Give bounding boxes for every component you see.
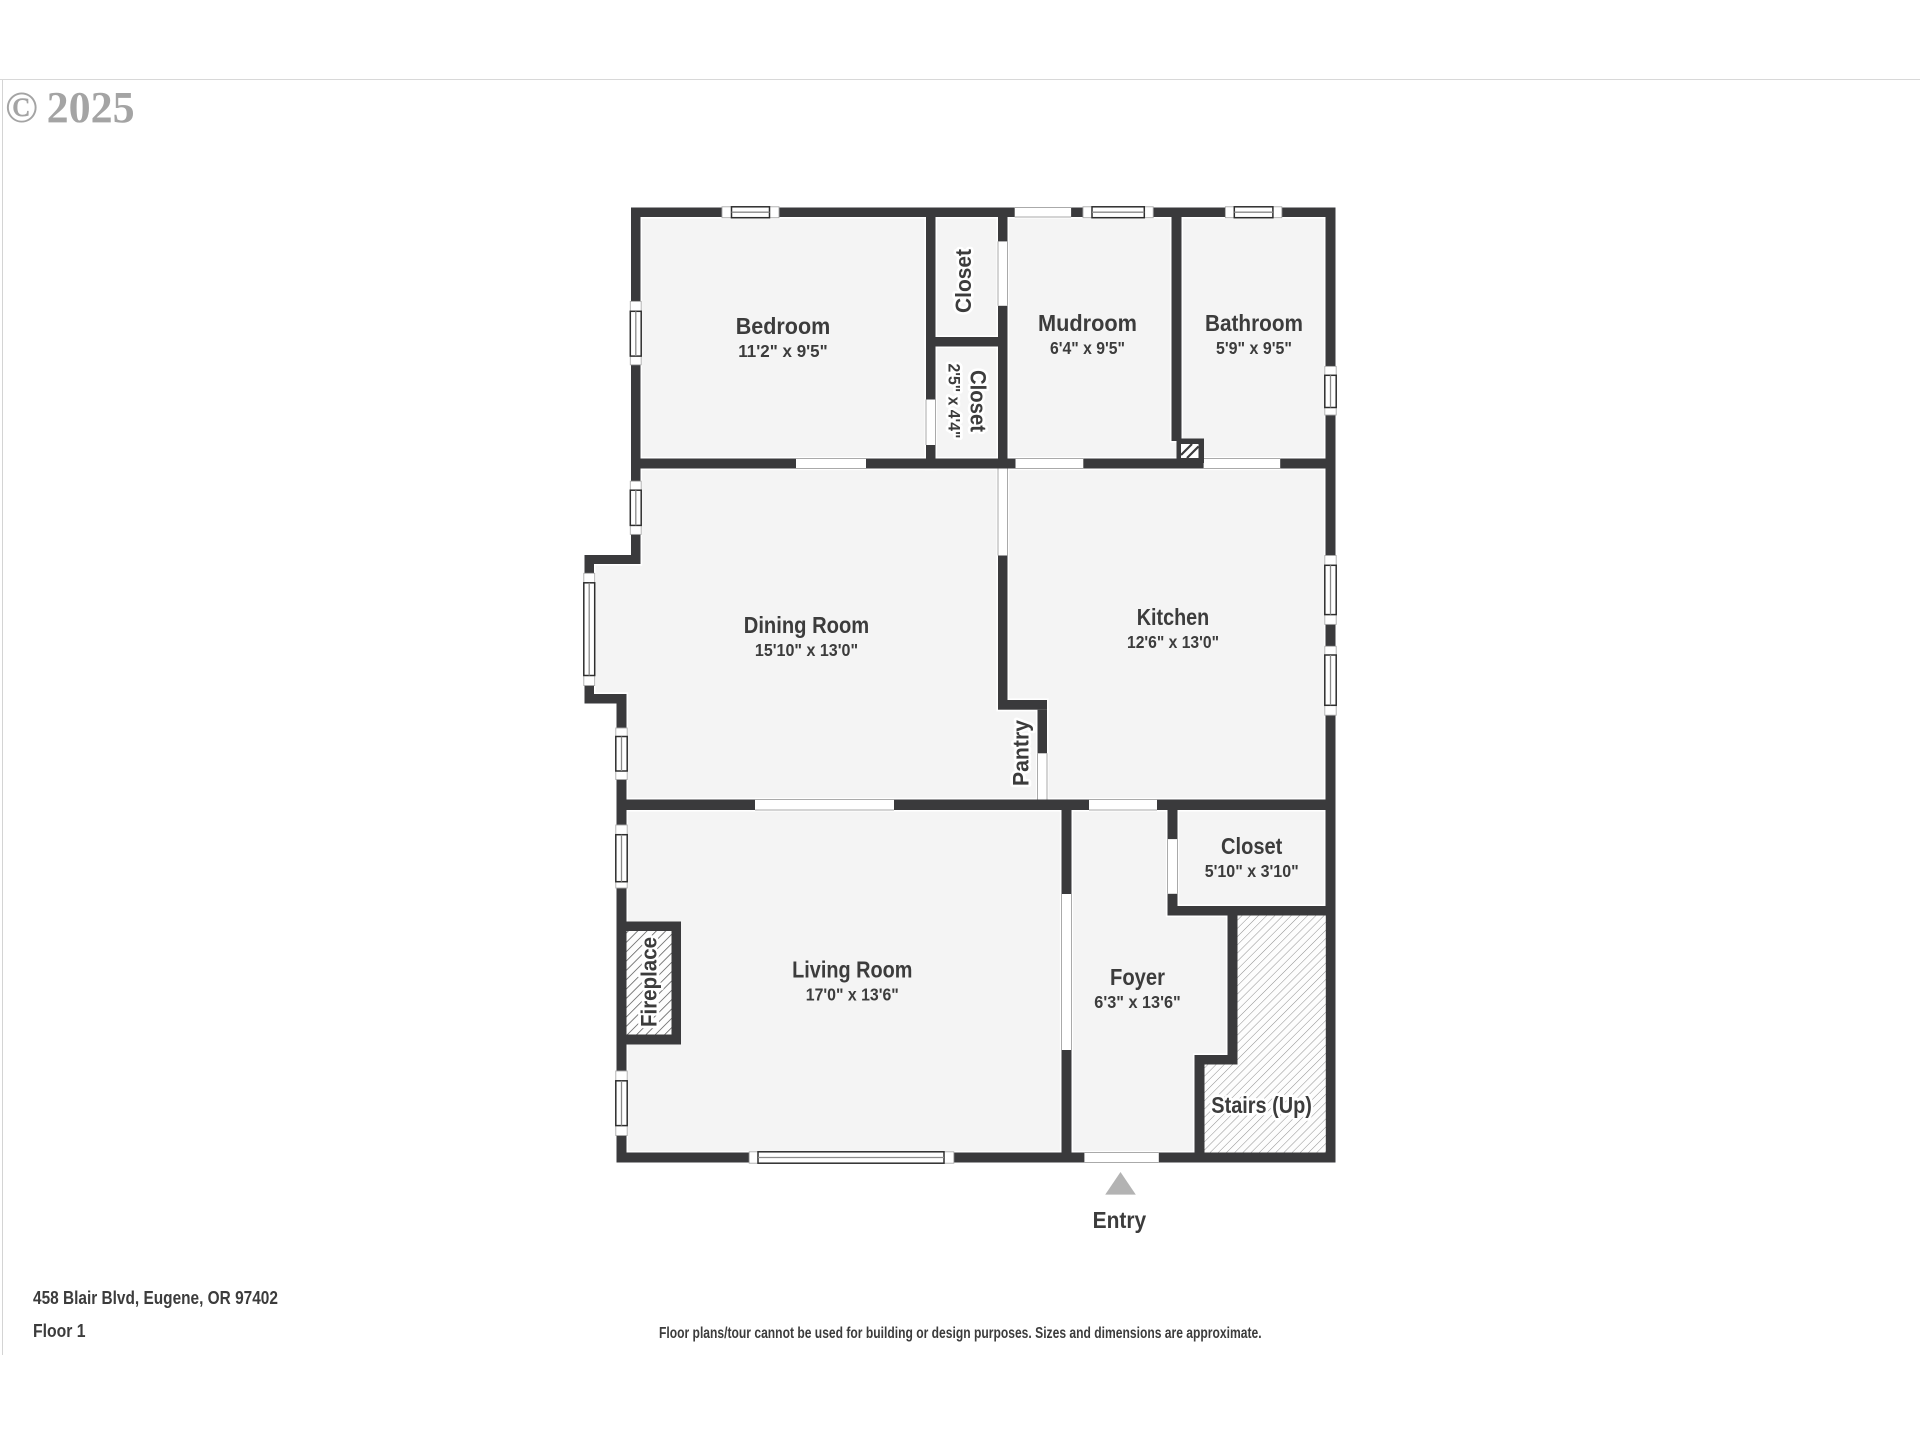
svg-text:Fireplace: Fireplace bbox=[637, 937, 662, 1027]
svg-text:2'5" x 4'4": 2'5" x 4'4" bbox=[945, 364, 964, 439]
svg-text:Kitchen: Kitchen bbox=[1137, 604, 1210, 630]
svg-text:Dining Room: Dining Room bbox=[744, 612, 870, 638]
svg-text:5'10" x 3'10": 5'10" x 3'10" bbox=[1205, 861, 1299, 881]
svg-text:15'10" x 13'0": 15'10" x 13'0" bbox=[755, 640, 858, 660]
svg-text:6'4" x 9'5": 6'4" x 9'5" bbox=[1050, 338, 1125, 358]
svg-text:Bedroom: Bedroom bbox=[736, 313, 831, 339]
svg-text:Closet: Closet bbox=[966, 370, 991, 432]
svg-text:Closet: Closet bbox=[951, 249, 976, 313]
svg-text:Closet: Closet bbox=[1221, 833, 1283, 859]
svg-text:Living Room: Living Room bbox=[792, 957, 912, 983]
svg-text:Mudroom: Mudroom bbox=[1038, 310, 1137, 336]
svg-text:Entry: Entry bbox=[1093, 1207, 1147, 1233]
svg-text:Pantry: Pantry bbox=[1009, 720, 1034, 786]
svg-text:17'0" x 13'6": 17'0" x 13'6" bbox=[806, 985, 899, 1005]
svg-text:5'9" x 9'5": 5'9" x 9'5" bbox=[1216, 338, 1292, 358]
svg-text:Bathroom: Bathroom bbox=[1205, 310, 1303, 336]
svg-text:Foyer: Foyer bbox=[1110, 964, 1165, 990]
svg-text:12'6" x 13'0": 12'6" x 13'0" bbox=[1127, 632, 1219, 652]
svg-text:Stairs (Up): Stairs (Up) bbox=[1211, 1092, 1312, 1118]
svg-text:6'3" x 13'6": 6'3" x 13'6" bbox=[1094, 992, 1180, 1012]
svg-text:11'2" x 9'5": 11'2" x 9'5" bbox=[738, 341, 827, 361]
